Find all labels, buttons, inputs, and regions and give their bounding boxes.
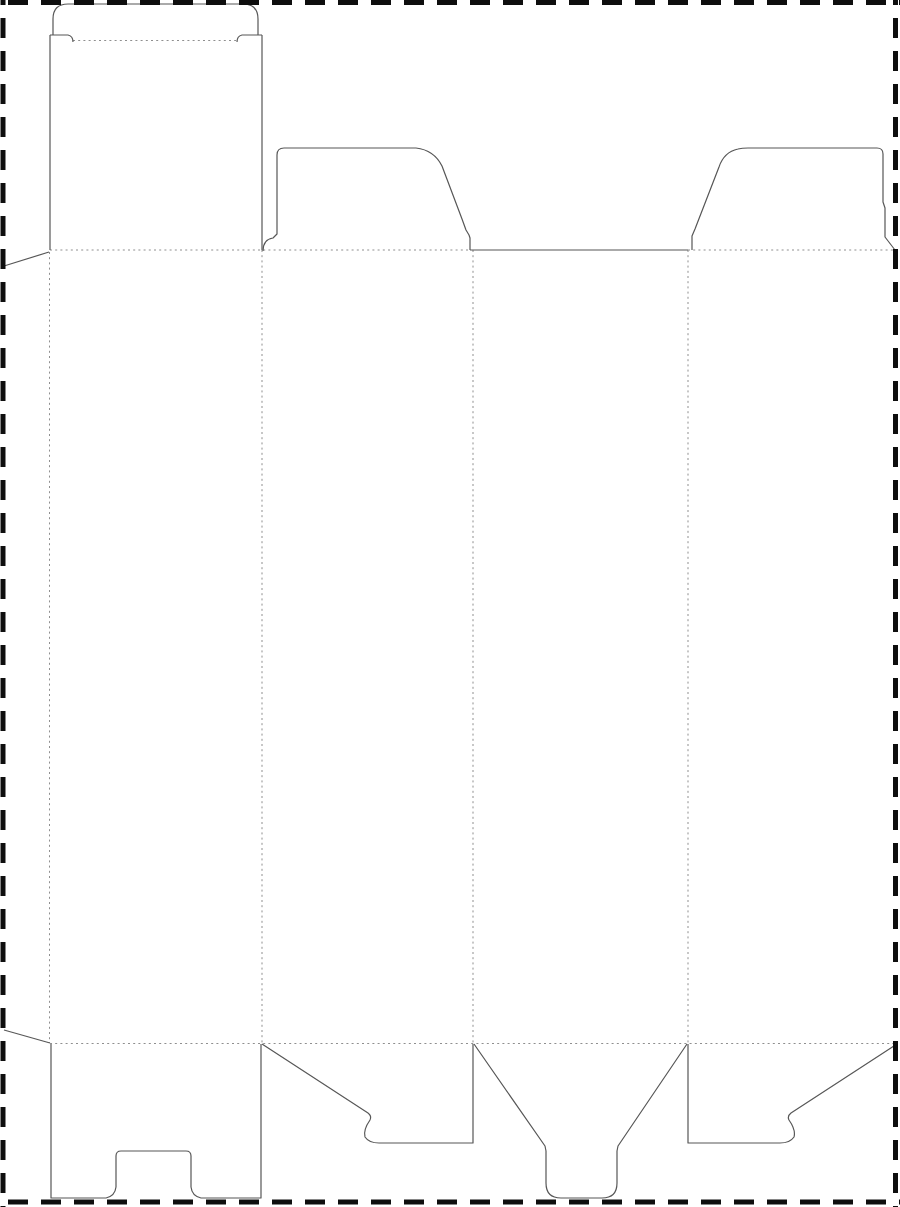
tuck-slit-right: [237, 35, 262, 42]
top-dust-flap-right-outline: [692, 148, 895, 250]
tuck-flap-outline: [53, 4, 258, 35]
bottom-snaplock-flap-right-outline: [688, 1044, 897, 1143]
glue-flap-top-edge: [4, 252, 49, 266]
glue-flap-bottom-edge: [4, 1030, 50, 1043]
box-dieline-drawing: [0, 0, 900, 1207]
bottom-snaplock-flap-left-outline: [262, 1044, 473, 1143]
bottom-lock-tongue-outline: [474, 1044, 687, 1198]
top-dust-flap-left-outline: [263, 148, 470, 251]
tuck-slit-left: [50, 35, 73, 42]
dieline-page: [0, 0, 900, 1207]
bottom-notch-flap-outline: [51, 1044, 261, 1198]
